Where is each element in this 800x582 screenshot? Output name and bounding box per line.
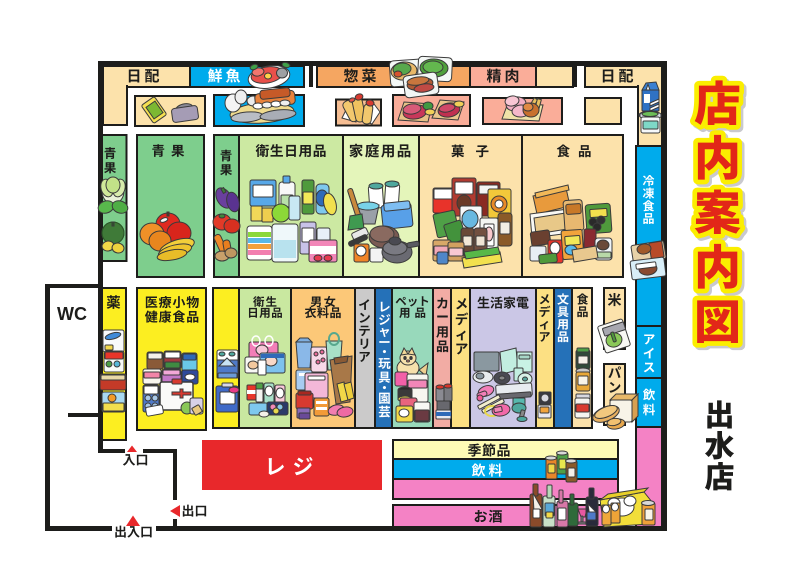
svg-text:WC: WC [57,304,87,324]
